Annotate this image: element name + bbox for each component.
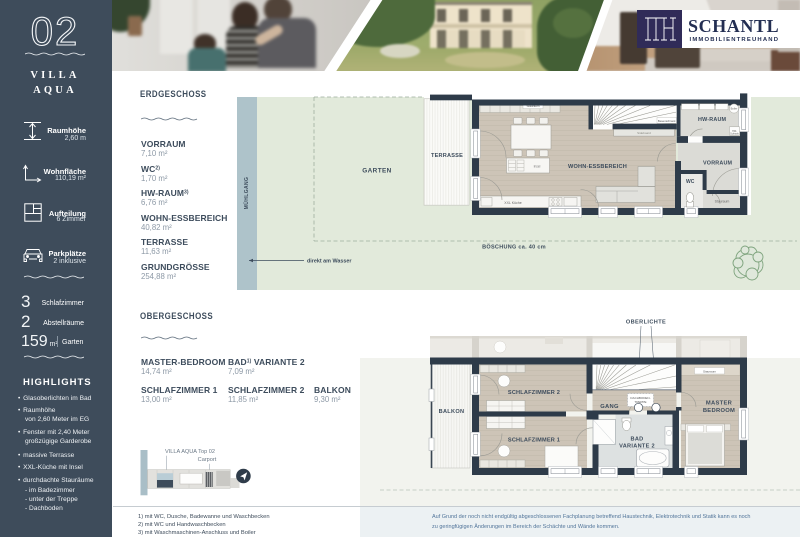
svg-text:BALKON: BALKON (439, 409, 465, 415)
svg-text:Stauraum: Stauraum (703, 369, 717, 373)
svg-text:WC: WC (686, 179, 695, 185)
svg-text:Besenschrank: Besenschrank (658, 119, 676, 123)
svg-text:GANG: GANG (600, 404, 619, 410)
svg-text:XXL Küche: XXL Küche (504, 201, 521, 205)
svg-text:direkt am Wasser: direkt am Wasser (307, 259, 352, 265)
svg-text:VORRAUM: VORRAUM (703, 161, 733, 167)
svg-text:Schrank: Schrank (730, 132, 740, 135)
svg-text:VARIANTE 2: VARIANTE 2 (619, 444, 655, 450)
svg-text:TERRASSE: TERRASSE (431, 153, 463, 159)
svg-text:Sideboard: Sideboard (637, 131, 651, 135)
svg-text:SCHLAFZIMMER 2: SCHLAFZIMMER 2 (508, 390, 560, 396)
svg-text:Stauraum: Stauraum (715, 200, 730, 204)
svg-text:02: 02 (31, 10, 80, 54)
svg-text:MÜHLGANG: MÜHLGANG (243, 177, 250, 210)
svg-text:WOHN-ESSBEREICH: WOHN-ESSBEREICH (568, 164, 627, 170)
svg-text:OBERLICHTE: OBERLICHTE (626, 320, 666, 326)
svg-text:TREPPE: TREPPE (634, 400, 646, 404)
svg-text:Insel: Insel (534, 165, 541, 169)
svg-text:BÖSCHUNG ca. 40 cm: BÖSCHUNG ca. 40 cm (482, 244, 546, 251)
svg-text:GARTEN: GARTEN (362, 167, 391, 174)
svg-text:Boiler: Boiler (731, 107, 738, 111)
svg-text:HW-RAUM: HW-RAUM (698, 117, 727, 123)
svg-text:MASTER: MASTER (706, 401, 733, 407)
svg-text:BAD: BAD (630, 437, 643, 443)
svg-text:BEDROOM: BEDROOM (703, 408, 735, 414)
svg-text:SCHLAFZIMMER 1: SCHLAFZIMMER 1 (508, 438, 560, 444)
